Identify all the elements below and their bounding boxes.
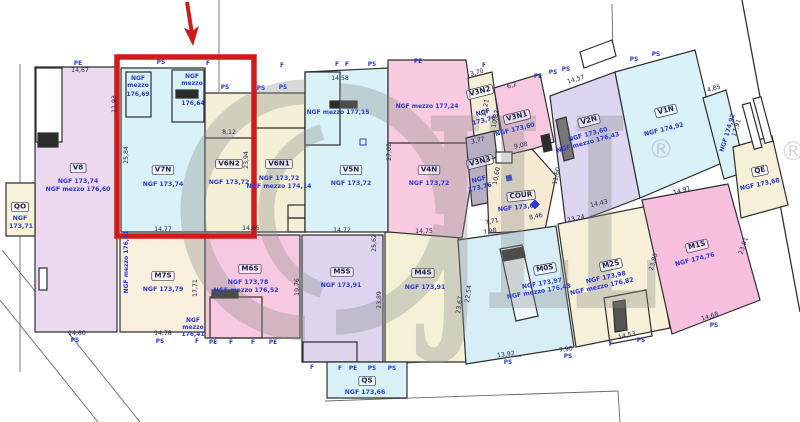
stair-block [38, 133, 58, 147]
stair-block [176, 90, 198, 98]
watermark-brand-text: JLL [415, 60, 658, 371]
unit-qs-region [327, 362, 407, 398]
highlight-arrow [187, 2, 192, 34]
registered-mark-icon: ® [780, 137, 800, 167]
door-niche [39, 268, 47, 290]
unit-regions [6, 40, 788, 398]
unit-v8-annex [36, 68, 62, 142]
unit-qo-region [6, 183, 35, 236]
floor-plan-drawing: JLL ® ® [0, 0, 800, 422]
floor-plan-page: JLL ® ® V8NGF 173,74NGF mezzo 176,60QONG… [0, 0, 800, 422]
unit-m5s-region [302, 235, 383, 362]
qe-stairs [742, 97, 774, 150]
registered-mark-icon: ® [648, 135, 674, 165]
